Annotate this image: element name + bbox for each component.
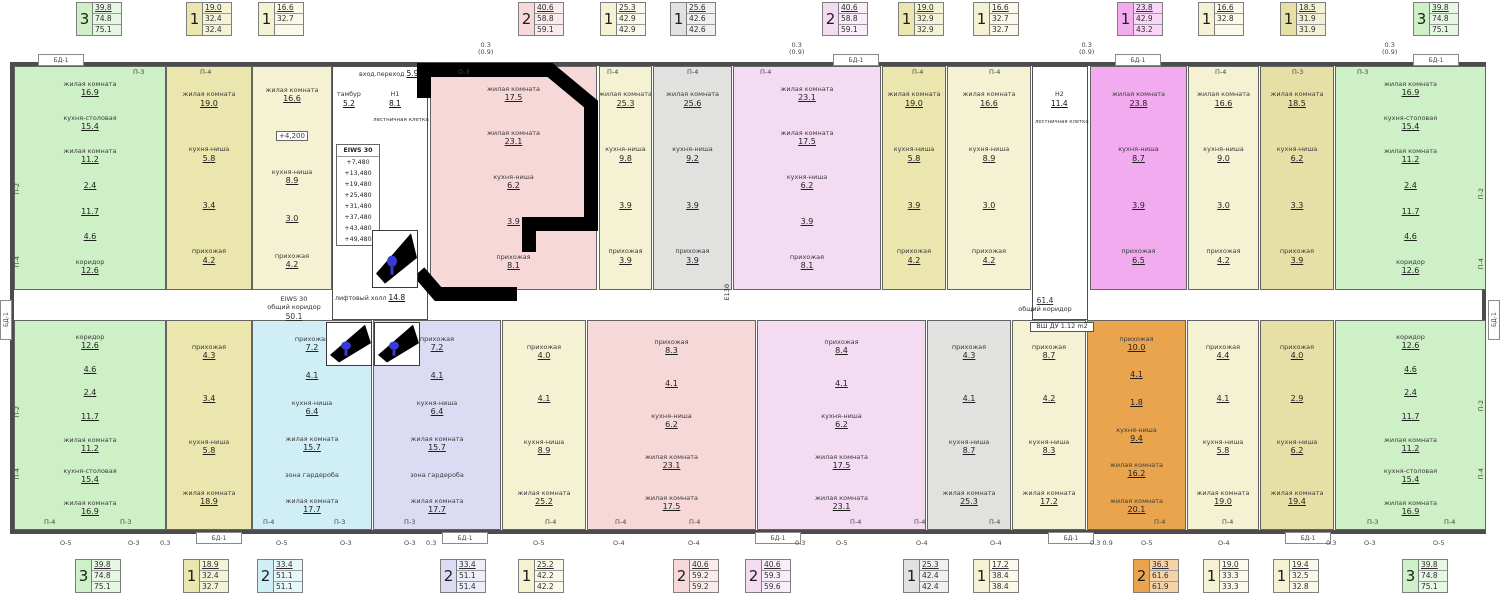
legend-room-count: 1 [1199,3,1215,35]
legend-areas: 18.932.432.7 [200,560,228,592]
room-label: 4.1 [835,379,848,389]
unit-apt-3r-top-right[interactable]: жилая комната16.9кухня-столовая15.4жилая… [1335,66,1486,290]
room-label: жилая комната17.7 [285,497,338,515]
room-label: кухня-ниша6.2 [1277,145,1318,163]
dim-label-top: 0.3(0.9) [1079,42,1094,57]
room-label: жилая комната15.7 [285,435,338,453]
unit-apt-1r-166-top-c[interactable]: жилая комната16.6кухня-ниша9.03.0прихожа… [1188,66,1259,290]
legend-areas: 40.658.859.1 [535,3,563,35]
unit-apt-1r-185-top[interactable]: жилая комната18.5кухня-ниша6.23.3прихожа… [1260,66,1334,290]
window-tag-bottom: П-4 [263,518,274,526]
legend-room-count: 2 [823,3,839,35]
dim-label-top: 0.3(0.9) [789,42,804,57]
legend-room-count: 2 [258,560,274,592]
legend-room-count: 1 [671,3,687,35]
window-tag-bottom: П-3 [334,518,345,526]
legend-areas: 33.451.151.4 [457,560,485,592]
balcony-stub-bottom: БД-1 [1048,532,1094,544]
legend-areas: 36.361.661.9 [1150,560,1178,592]
room-label: кухня-ниша8.9 [272,168,313,186]
window-tag-left: П-4 [13,468,21,479]
lift-hall-label: лифтовый холл 14.8 [335,293,405,303]
room-label: зона гардероба [410,471,464,479]
dim-label-bottom: О-3 [1364,540,1376,547]
room-label: прихожая8.7 [1032,343,1066,361]
legend-room-count: 1 [1204,560,1220,592]
balcony-stub-top: БД-1 [833,54,879,66]
room-label: кухня-ниша5.8 [189,145,230,163]
legend-room-count: 3 [76,560,92,592]
legend-room-count: 3 [77,3,93,35]
legend-box-top-10[interactable]: 123.842.943.2 [1117,2,1163,36]
unit-apt-1r-166-top-a[interactable]: жилая комната16.6+4,200кухня-ниша8.93.0п… [252,66,332,290]
unit-apt-1r-166-top-b[interactable]: жилая комната16.6кухня-ниша8.93.0прихожа… [947,66,1031,290]
elevator-icon [374,322,420,366]
room-label: 4.2 [1043,394,1056,404]
dim-label-bottom: О-4 [990,540,1002,547]
unit-apt-3r-bot-right[interactable]: коридор12.64.62.411.7жилая комната11.2ку… [1335,320,1486,530]
room-label: 4.1 [963,394,976,404]
room-label: прихожая4.2 [192,247,226,265]
legend-room-count: 1 [974,560,990,592]
room-label: кухня-ниша5.8 [894,145,935,163]
legend-areas: 19.432.532.8 [1290,560,1318,592]
room-label: жилая комната17.2 [1022,489,1075,507]
legend-room-count: 2 [746,560,762,592]
room-label: 4.6 [1404,365,1417,375]
unit-apt-1r-19-bot[interactable]: прихожая4.44.1кухня-ниша5.8жилая комната… [1187,320,1259,530]
legend-areas: 40.659.259.2 [690,560,718,592]
unit-apt-1r-256-top[interactable]: жилая комната25.6кухня-ниша9.23.9прихожа… [653,66,732,290]
dim-label-top: 0.3(0.9) [478,42,493,57]
legend-box-bottom-6[interactable]: 240.659.259.2 [673,559,719,593]
room-label: коридор12.6 [76,258,105,276]
room-label: жилая комната16.6 [265,86,318,104]
room-label: 11.7 [1402,412,1420,422]
window-tag-right: П-2 [1477,188,1485,199]
room-label: 11.7 [81,412,99,422]
room-label: 4.1 [1217,394,1230,404]
room-label: прихожая4.3 [952,343,986,361]
window-tag-bottom: П-4 [545,518,556,526]
room-label: 3.0 [983,201,996,211]
room-label: жилая комната16.9 [63,499,116,517]
room-label: коридор12.6 [76,333,105,351]
room-label: 4.1 [538,394,551,404]
room-label: 2.9 [1291,394,1304,404]
room-label: кухня-ниша9.4 [1116,426,1157,444]
dim-label-bottom: О-4 [688,540,700,547]
room-label: жилая комната16.2 [1110,461,1163,479]
dim-label-bottom: О-3 [340,540,352,547]
room-label: прихожая4.2 [1206,247,1240,265]
elevator-icon [372,230,418,288]
legend-box-top-13[interactable]: 339.874.875.1 [1413,2,1459,36]
legend-areas: 39.874.875.1 [93,3,121,35]
dim-label-top: 0.3(0.9) [1382,42,1397,57]
window-tag-left: П-2 [13,406,21,417]
room-label: жилая комната16.9 [1384,499,1437,517]
room-label: кухня-ниша9.0 [1203,145,1244,163]
legend-areas: 39.874.875.1 [92,560,120,592]
legend-box-top-3[interactable]: 116.632.7 [258,2,304,36]
room-label: жилая комната25.3 [942,489,995,507]
dim-label-bottom: О-5 [533,540,545,547]
room-label: 3.9 [686,201,699,211]
room-label: 2.4 [84,388,97,398]
room-label: кухня-ниша6.2 [493,173,534,191]
legend-room-count: 1 [259,3,275,35]
legend-room-count: 2 [674,560,690,592]
dim-label-bottom: 0,3 [160,540,170,547]
window-tag-top: П-3 [133,68,144,76]
unit-apt-1r-253-top[interactable]: жилая комната25.3кухня-ниша9.83.9прихожа… [599,66,652,290]
room-label: жилая комната11.2 [63,147,116,165]
unit-apt-2r-pink-bot[interactable]: прихожая8.34.1кухня-ниша6.2жилая комната… [587,320,756,530]
legend-room-count: 1 [519,560,535,592]
room-label: кухня-ниша9.8 [605,145,646,163]
corridor-label-4: E130 [724,284,734,301]
legend-box-bottom-12[interactable]: 119.432.532.8 [1273,559,1319,593]
window-tag-bottom: П-4 [850,518,861,526]
window-tag-left: П-2 [13,183,21,194]
window-tag-bottom: П-3 [404,518,415,526]
room-label: 2.4 [84,181,97,191]
legend-areas: 16.632.8 [1215,3,1243,35]
room-label: жилая комната18.9 [182,489,235,507]
unit-apt-1r-172-bot[interactable]: прихожая8.74.2кухня-ниша8.3жилая комната… [1012,320,1086,530]
legend-areas: 39.874.875.1 [1430,3,1458,35]
room-label: прихожая8.3 [654,338,688,356]
room-label: 3.0 [286,214,299,224]
dim-label-bottom: О-4 [1218,540,1230,547]
dim-label-bottom: О-5 [1433,540,1445,547]
room-label: 4.6 [1404,232,1417,242]
stair-id-label: Н18.1 [389,91,401,108]
room-label: кухня-ниша6.2 [787,173,828,191]
window-tag-top: П-4 [989,68,1000,76]
room-label: 11.7 [81,207,99,217]
legend-areas: 19.033.333.3 [1220,560,1248,592]
room-label: жилая комната19.0 [1196,489,1249,507]
window-tag-bottom: П-4 [615,518,626,526]
window-tag-right: П-4 [1477,468,1485,479]
legend-box-top-12[interactable]: 118.531.931.9 [1280,2,1326,36]
dim-label-bottom: О-3 [404,540,416,547]
legend-box-top-6[interactable]: 125.642.642.6 [670,2,716,36]
room-label: кухня-ниша5.8 [189,438,230,456]
unit-apt-1r-19-top-left[interactable]: жилая комната19.0кухня-ниша5.83.4прихожа… [166,66,252,290]
window-tag-bottom: П-3 [120,518,131,526]
window-tag-bottom: П-4 [1154,518,1165,526]
room-label: 2.4 [1404,388,1417,398]
legend-areas: 39.874.875.1 [1419,560,1447,592]
legend-room-count: 1 [1274,560,1290,592]
stair-name-label: лестничная клетка [1035,119,1089,125]
stair-core-2: Н211.4лестничная клетка [1032,66,1088,320]
window-tag-bottom: П-4 [1444,518,1455,526]
room-label: прихожая10.0 [1119,335,1153,353]
room-label: 3.4 [203,394,216,404]
room-label: 3.0 [1217,201,1230,211]
room-label: прихожая8.1 [496,253,530,271]
legend-room-count: 1 [1281,3,1297,35]
room-label: кухня-столовая15.4 [63,114,116,132]
window-tag-top: П-4 [200,68,211,76]
balcony-stub-top: БД-1 [38,54,84,66]
floorplan-page: { "colors": { "wall": "#4c4c4c", "green"… [0,0,1500,597]
room-label: прихожая4.2 [972,247,1006,265]
room-label: 3.9 [507,217,520,227]
legend-box-bottom-7[interactable]: 240.659.359.6 [745,559,791,593]
room-label: коридор12.6 [1396,258,1425,276]
dim-label-bottom: О-4 [916,540,928,547]
unit-apt-2r-pink-top[interactable]: жилая комната17.5жилая комната23.1кухня-… [430,66,597,290]
room-label: жилая комната19.0 [887,90,940,108]
room-label: жилая комната17.5 [487,85,540,103]
room-label: жилая комната11.2 [1384,147,1437,165]
dim-label-bottom: О-5 [276,540,288,547]
dim-label-bottom: О-5 [1141,540,1153,547]
room-label: жилая комната23.1 [780,85,833,103]
room-label: 1.8 [1130,398,1143,408]
room-label: прихожая4.0 [1280,343,1314,361]
room-label: 3.9 [801,217,814,227]
entry-label: вход.переход 5.9 [359,69,418,79]
window-tag-bottom: П-4 [989,518,1000,526]
legend-room-count: 3 [1403,560,1419,592]
room-label: прихожая3.9 [608,247,642,265]
window-tag-top: П-3 [1292,68,1303,76]
legend-areas: 18.531.931.9 [1297,3,1325,35]
room-label: жилая комната16.9 [63,80,116,98]
dim-label-bottom: О-4 [613,540,625,547]
legend-box-top-11[interactable]: 116.632.8 [1198,2,1244,36]
legend-box-top-8[interactable]: 119.032.932.9 [898,2,944,36]
room-label: жилая комната17.5 [780,129,833,147]
legend-areas: 25.342.942.9 [617,3,645,35]
unit-apt-2r-orange-bot[interactable]: прихожая10.04.11.8кухня-ниша9.4жилая ком… [1087,320,1186,530]
legend-areas: 19.032.432.4 [203,3,231,35]
room-label: 3.9 [1132,201,1145,211]
room-label: прихожая4.2 [897,247,931,265]
room-label: жилая комната19.4 [1270,489,1323,507]
legend-areas: 25.342.442.4 [920,560,948,592]
balcony-stub-top: БД-1 [1413,54,1459,66]
unit-apt-1r-19-top-b[interactable]: жилая комната19.0кухня-ниша5.83.9прихожа… [882,66,946,290]
unit-apt-1r-238-magenta[interactable]: жилая комната23.8кухня-ниша8.73.9прихожа… [1090,66,1187,290]
window-tag-top: П-4 [760,68,771,76]
dim-label-bottom: 0.3 [1326,540,1336,547]
room-label: жилая комната11.2 [63,436,116,454]
balcony-stub-bottom: БД-1 [196,532,242,544]
room-label: 3.9 [908,201,921,211]
stair-name-label: лестничная клетка [373,117,429,124]
balcony-stub-side: БД-1 [1488,300,1500,340]
unit-apt-2r-violet-top[interactable]: жилая комната23.1жилая комната17.5кухня-… [733,66,881,290]
room-label: прихожая4.4 [1206,343,1240,361]
balcony-stub-side: БД-1 [0,300,12,340]
legend-box-bottom-2[interactable]: 118.932.432.7 [183,559,229,593]
room-label: 4.1 [306,371,319,381]
legend-areas: 40.659.359.6 [762,560,790,592]
dim-label-bottom: О-5 [836,540,848,547]
room-label: жилая комната17.5 [815,453,868,471]
legend-box-top-7[interactable]: 240.658.859.1 [822,2,868,36]
room-label: жилая комната17.5 [645,494,698,512]
room-label: 4.1 [665,379,678,389]
window-tag-bottom: П-3 [1367,518,1378,526]
room-label: кухня-ниша6.2 [651,412,692,430]
window-tag-bottom: П-4 [44,518,55,526]
legend-box-bottom-10[interactable]: 236.361.661.9 [1133,559,1179,593]
legend-areas: 17.238.438.4 [990,560,1018,592]
room-label: жилая комната16.6 [1197,90,1250,108]
room-label: жилая комната25.2 [517,489,570,507]
legend-areas: 16.632.7 [275,3,303,35]
unit-apt-1r-253-bot[interactable]: прихожая4.34.1кухня-ниша8.7жилая комната… [927,320,1011,530]
legend-room-count: 1 [184,560,200,592]
unit-apt-3r-bot-left[interactable]: коридор12.64.62.411.7жилая комната11.2ку… [14,320,166,530]
window-tag-top: О-3 [458,68,470,76]
room-label: прихожая7.2 [295,335,329,353]
unit-apt-3r-top-left[interactable]: жилая комната16.9кухня-столовая15.4жилая… [14,66,166,290]
room-label: 2.4 [1404,181,1417,191]
legend-box-bottom-11[interactable]: 119.033.333.3 [1203,559,1249,593]
legend-areas: 25.642.642.6 [687,3,715,35]
room-label: жилая комната11.2 [1384,436,1437,454]
window-tag-bottom: П-4 [914,518,925,526]
room-label: 3.4 [203,201,216,211]
room-label: кухня-ниша6.2 [821,412,862,430]
room-label: кухня-ниша8.7 [1118,145,1159,163]
window-tag-bottom: П-4 [1222,518,1233,526]
room-label: зона гардероба [285,471,339,479]
room-label: жилая комната23.1 [645,453,698,471]
legend-room-count: 1 [904,560,920,592]
room-label: 4.1 [1130,370,1143,380]
legend-box-top-2[interactable]: 119.032.432.4 [186,2,232,36]
corridor-label-2: 61.4общий коридор [1002,296,1088,314]
room-label: жилая комната20.1 [1110,497,1163,515]
room-label: 4.1 [431,371,444,381]
dim-label-bottom: 0.3 [426,540,436,547]
room-label: жилая комната17.7 [410,497,463,515]
room-label: кухня-ниша6.4 [417,399,458,417]
room-label: кухня-ниша8.9 [524,438,565,456]
room-label: кухня-столовая15.4 [1384,467,1437,485]
room-label: кухня-ниша5.8 [1203,438,1244,456]
room-label: жилая комната25.6 [666,90,719,108]
legend-box-top-5[interactable]: 125.342.942.9 [600,2,646,36]
room-label: жилая комната16.6 [962,90,1015,108]
room-label: прихожая8.1 [790,253,824,271]
unit-apt-2r-violet-bot[interactable]: прихожая8.44.1кухня-ниша6.2жилая комната… [757,320,926,530]
legend-box-bottom-9[interactable]: 117.238.438.4 [973,559,1019,593]
elevator-icon [326,322,372,366]
legend-box-bottom-1[interactable]: 339.874.875.1 [75,559,121,593]
room-label: +4,200 [276,132,308,141]
room-label: кухня-столовая15.4 [63,467,116,485]
unit-apt-1r-189-bot[interactable]: прихожая4.33.4кухня-ниша5.8жилая комната… [166,320,252,530]
legend-room-count: 1 [601,3,617,35]
room-label: прихожая3.9 [675,247,709,265]
room-label: кухня-ниша8.3 [1029,438,1070,456]
room-label: прихожая4.2 [275,252,309,270]
tambour-label: тамбур5.2 [337,91,361,108]
window-tag-top: П-4 [1215,68,1226,76]
legend-areas: 19.032.932.9 [915,3,943,35]
legend-room-count: 1 [1118,3,1134,35]
room-label: жилая комната19.0 [182,90,235,108]
room-label: кухня-ниша6.2 [1277,438,1318,456]
window-tag-right: П-4 [1477,258,1485,269]
legend-areas: 16.632.732.7 [990,3,1018,35]
dim-label-bottom: 0.3 [795,540,805,547]
legend-room-count: 1 [187,3,203,35]
legend-room-count: 1 [974,3,990,35]
legend-areas: 33.451.151.1 [274,560,302,592]
legend-room-count: 1 [899,3,915,35]
room-label: 4.6 [84,365,97,375]
legend-areas: 40.658.859.1 [839,3,867,35]
room-label: прихожая7.2 [420,335,454,353]
unit-apt-1r-194-bot[interactable]: прихожая4.02.9кухня-ниша6.2жилая комната… [1260,320,1334,530]
window-tag-top: П-4 [687,68,698,76]
window-tag-right: П-2 [1477,400,1485,411]
room-label: прихожая3.9 [1280,247,1314,265]
corridor-label-3: ВШ ДУ 1.12 m2 [1030,322,1094,332]
window-tag-top: П-3 [1357,68,1368,76]
room-label: жилая комната18.5 [1270,90,1323,108]
room-label: кухня-ниша8.9 [969,145,1010,163]
legend-box-bottom-3[interactable]: 233.451.151.1 [257,559,303,593]
room-label: жилая комната23.1 [815,494,868,512]
legend-box-bottom-5[interactable]: 125.242.242.2 [518,559,564,593]
balcony-stub-bottom: БД-1 [1285,532,1331,544]
room-label: кухня-ниша8.7 [949,438,990,456]
room-label: 11.7 [1402,207,1420,217]
room-label: жилая комната25.3 [599,90,652,108]
room-label: жилая комната23.1 [487,129,540,147]
corridor-label-1: EIWS 30общий коридор50.1 [256,296,332,321]
room-label: 3.9 [619,201,632,211]
room-label: кухня-ниша9.2 [672,145,713,163]
balcony-stub-bottom: БД-1 [442,532,488,544]
legend-box-top-4[interactable]: 240.658.859.1 [518,2,564,36]
window-tag-bottom: П-4 [689,518,700,526]
unit-apt-1r-252-bot[interactable]: прихожая4.04.1кухня-ниша8.9жилая комната… [502,320,586,530]
legend-areas: 25.242.242.2 [535,560,563,592]
balcony-stub-top: БД-1 [1115,54,1161,66]
legend-box-bottom-8[interactable]: 125.342.442.4 [903,559,949,593]
legend-box-bottom-4[interactable]: 233.451.151.4 [440,559,486,593]
room-label: 4.6 [84,232,97,242]
legend-box-top-1[interactable]: 339.874.875.1 [76,2,122,36]
window-tag-top: П-4 [912,68,923,76]
dim-label-bottom: 0.3 0.9 [1090,540,1113,547]
room-label: прихожая6.5 [1121,247,1155,265]
legend-room-count: 2 [519,3,535,35]
room-label: прихожая8.4 [824,338,858,356]
room-label: жилая комната16.9 [1384,80,1437,98]
room-label: кухня-ниша6.4 [292,399,333,417]
legend-box-bottom-13[interactable]: 339.874.875.1 [1402,559,1448,593]
room-label: коридор12.6 [1396,333,1425,351]
legend-box-top-9[interactable]: 116.632.732.7 [973,2,1019,36]
stair-id-label: Н211.4 [1051,91,1068,108]
legend-areas: 23.842.943.2 [1134,3,1162,35]
